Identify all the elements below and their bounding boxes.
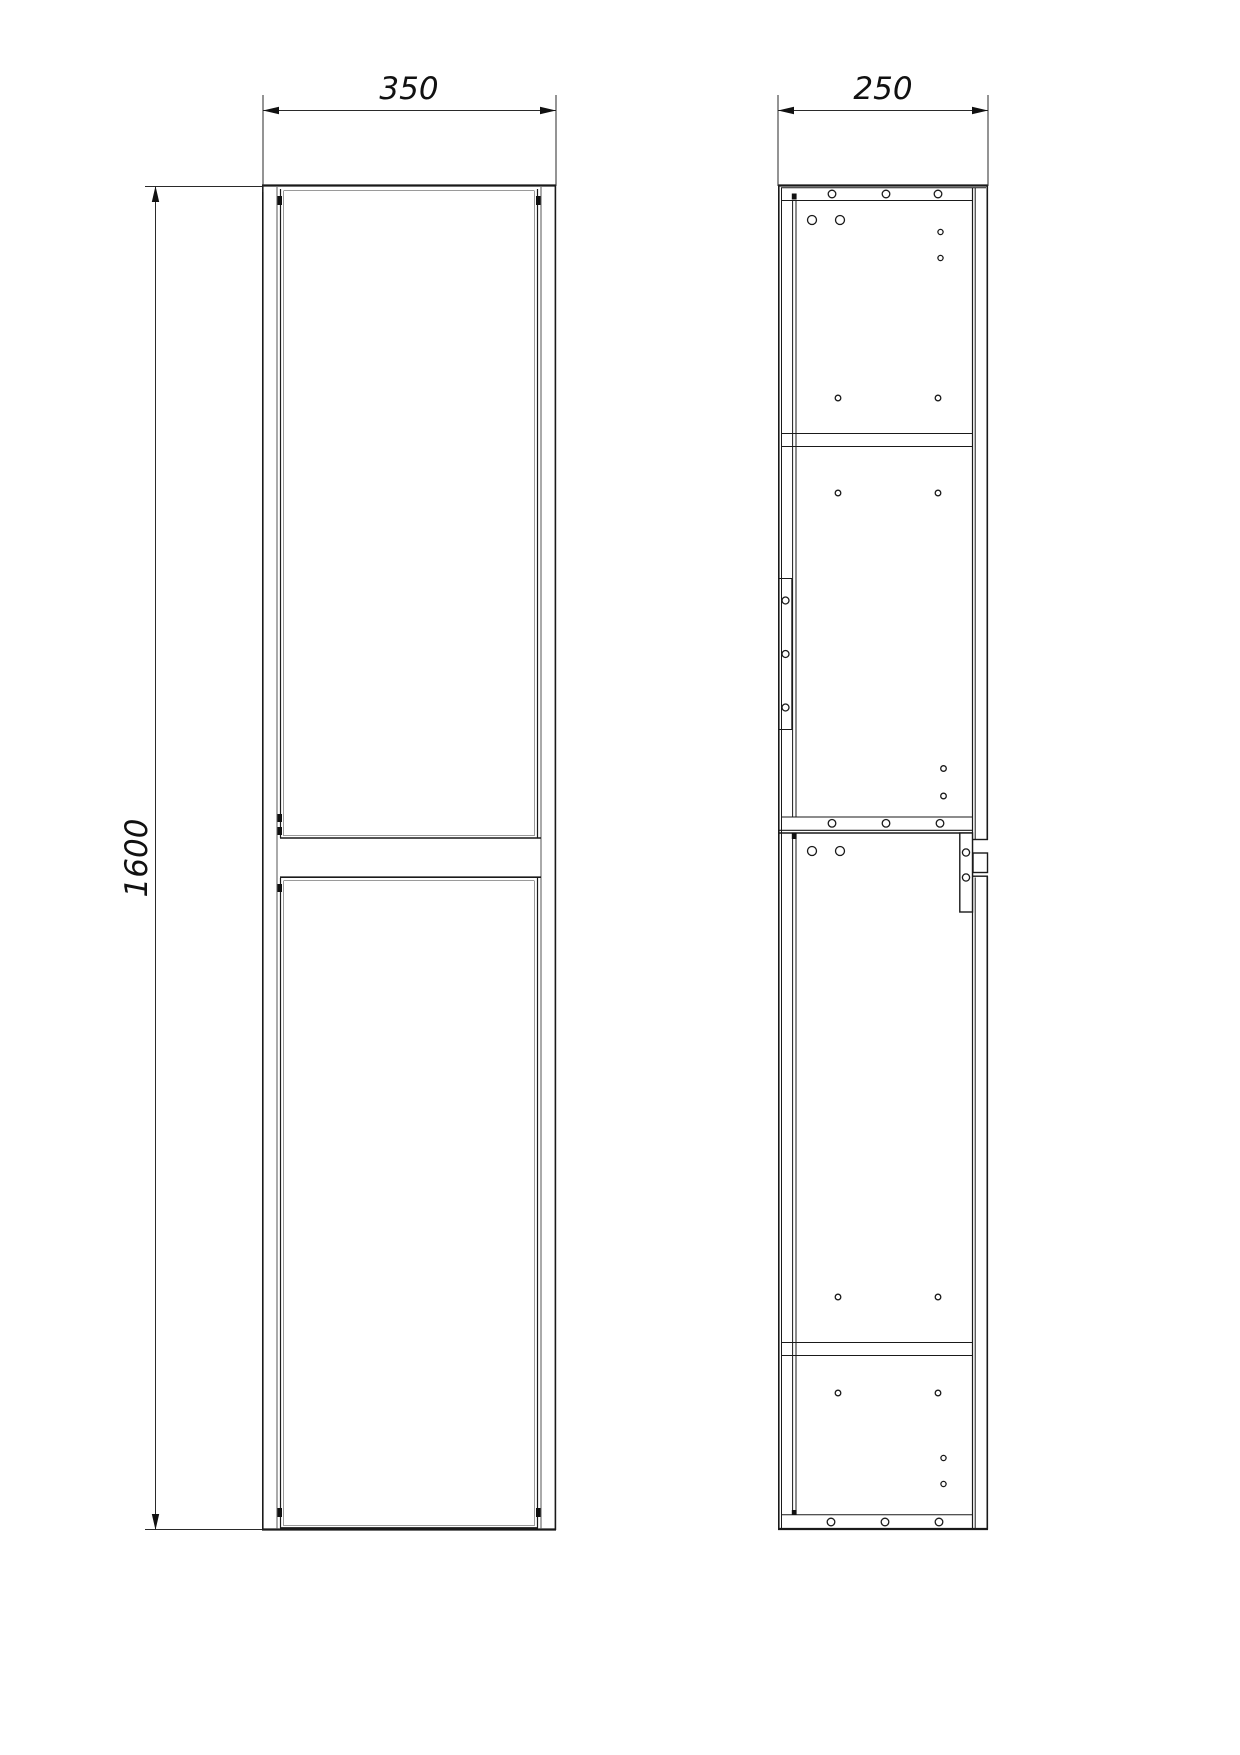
dimension-label-width: 350 (379, 71, 438, 107)
hinge-marks (278, 196, 541, 1517)
dimension-label-depth: 250 (853, 71, 912, 107)
drill-holes (808, 190, 947, 1526)
dimension-side-depth: 250 (778, 71, 988, 186)
upper-door (280, 189, 541, 838)
lower-door (280, 877, 541, 1528)
technical-drawing: 350 250 1600 (0, 0, 1240, 1755)
dimension-front-width: 350 (263, 71, 556, 192)
dimension-label-height: 1600 (119, 819, 155, 898)
shelf-upper (781, 434, 973, 447)
arrowhead-left (263, 107, 279, 114)
door-edge-lower (973, 876, 988, 1529)
arrowhead-top (152, 186, 159, 202)
back-panel (792, 194, 797, 1516)
cabinet-carcass-side (778, 185, 988, 1530)
cabinet-carcass-front (262, 185, 556, 1530)
drawing-canvas: 350 250 1600 (0, 0, 1240, 1755)
shelf-lower (781, 1343, 973, 1356)
side-view (778, 185, 988, 1530)
arrowhead-right (972, 107, 988, 114)
door-adjuster-block (973, 853, 988, 873)
door-edge-upper (973, 186, 988, 840)
arrowhead-left (778, 107, 794, 114)
arrowhead-bottom (152, 1514, 159, 1530)
connector-bracket (960, 833, 988, 912)
arrowhead-right (540, 107, 556, 114)
dimension-front-height: 1600 (119, 186, 262, 1530)
front-view (262, 185, 556, 1530)
